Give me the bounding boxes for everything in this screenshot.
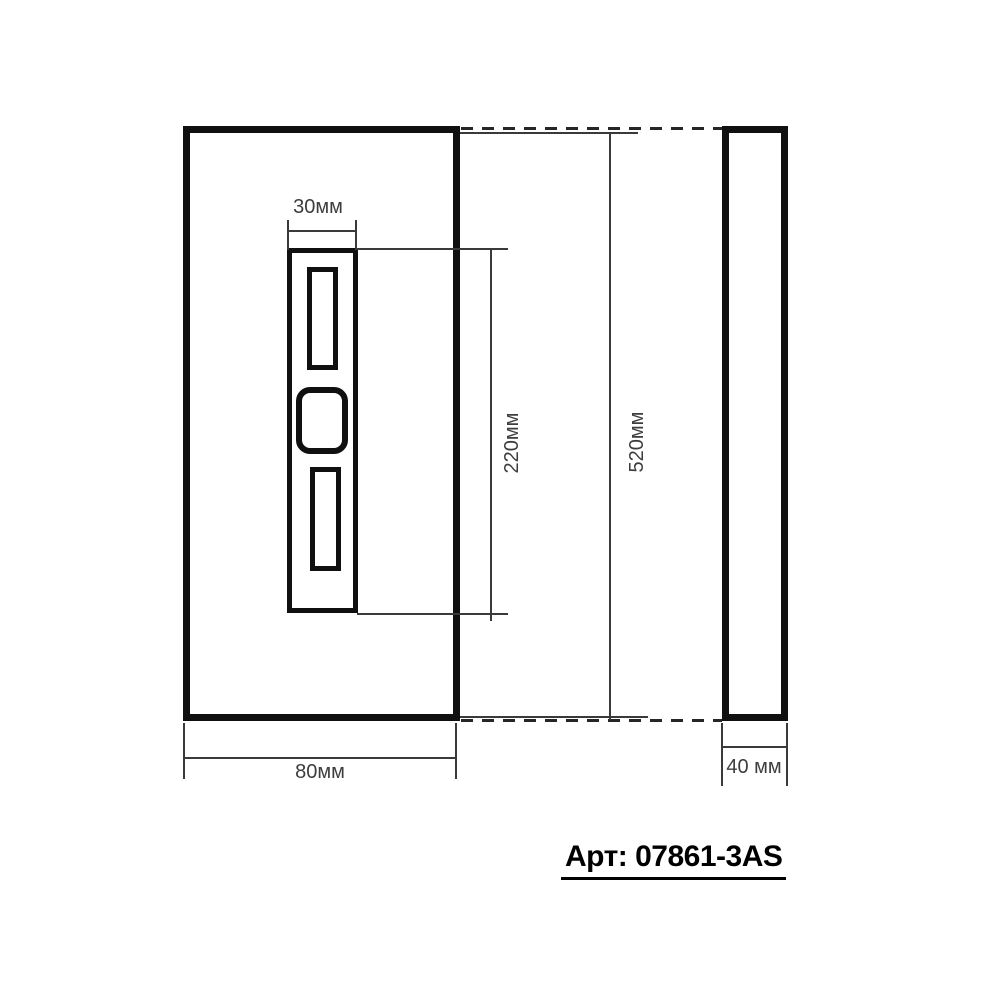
- dim-220-line: [490, 248, 492, 621]
- dim-80-ext-left: [183, 723, 185, 779]
- dim-520-ext-top: [460, 132, 638, 134]
- dim-220-ext-top: [357, 248, 508, 250]
- dim-520-label: 520мм: [627, 397, 647, 487]
- article-label: Арт: 07861-3AS: [561, 840, 786, 880]
- side-view-outline: [722, 126, 788, 721]
- bottom-slot-outline: [310, 467, 341, 571]
- dim-80-ext-right: [455, 723, 457, 779]
- dim-80-line: [184, 757, 456, 759]
- dim-40-line: [722, 746, 788, 748]
- dim-520-ext-bottom: [460, 716, 648, 718]
- dim-220-ext-bottom: [357, 613, 508, 615]
- rocker-switch-outline: [296, 387, 348, 454]
- dim-520-line: [609, 132, 611, 720]
- dim-30-tick-right: [355, 220, 357, 250]
- dim-220-label: 220мм: [502, 398, 522, 488]
- dim-40-label: 40 мм: [714, 757, 794, 777]
- hidden-line-bottom: [461, 719, 722, 722]
- hidden-line-top: [461, 127, 722, 130]
- dim-30-tick-left: [287, 220, 289, 250]
- dim-80-label: 80мм: [240, 762, 400, 782]
- top-slot-outline: [307, 267, 338, 370]
- dim-30-label: 30мм: [278, 197, 358, 217]
- dim-30-line: [288, 230, 356, 232]
- technical-drawing: 30мм 220мм 520мм 80мм 40 мм Арт: 07861-3…: [0, 0, 1000, 1000]
